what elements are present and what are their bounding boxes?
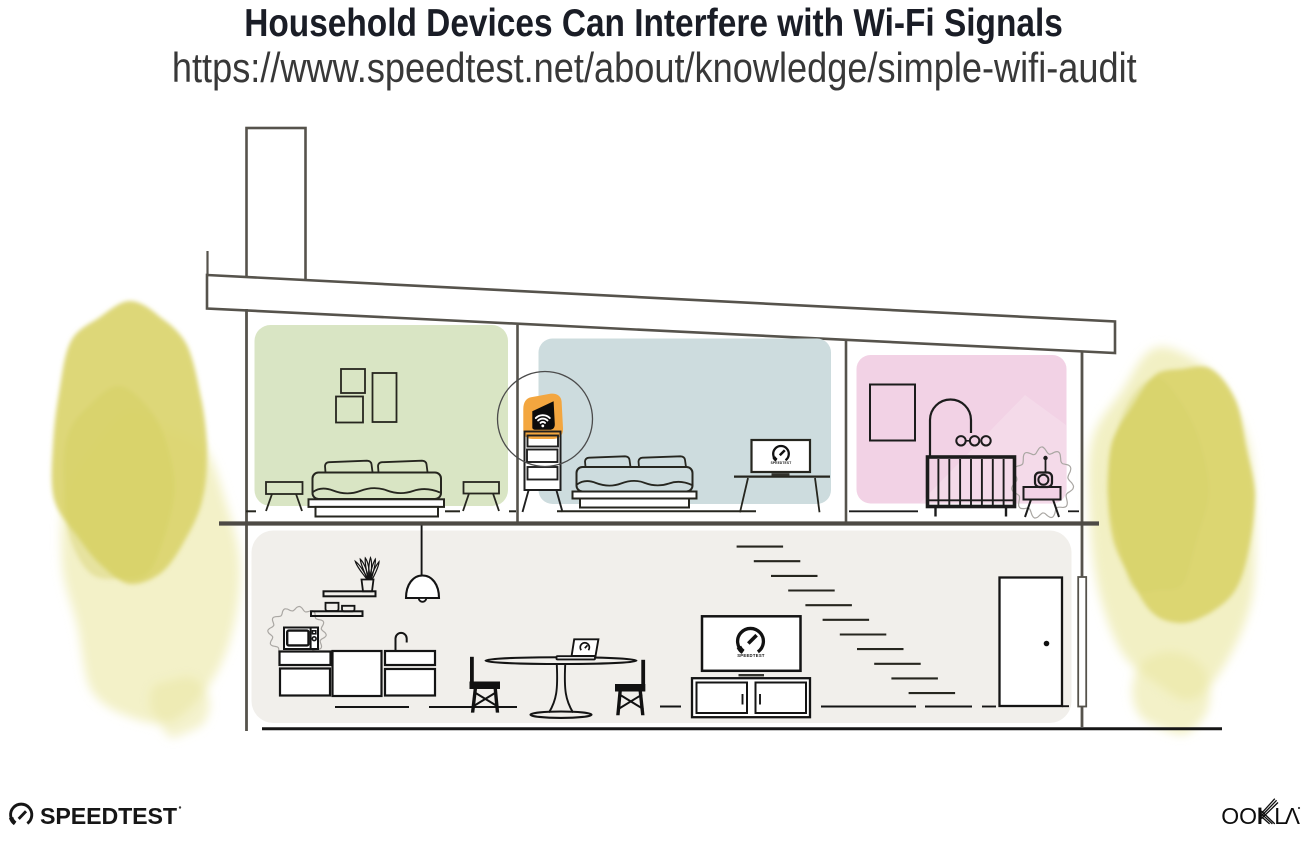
svg-text:SPEEDTEST: SPEEDTEST [771, 461, 792, 465]
svg-text:OO: OO [1221, 803, 1257, 829]
svg-text:Λ: Λ [1285, 803, 1301, 829]
svg-text:SPEEDTEST: SPEEDTEST [737, 653, 765, 658]
svg-text:SPEEDTEST: SPEEDTEST [40, 803, 177, 829]
